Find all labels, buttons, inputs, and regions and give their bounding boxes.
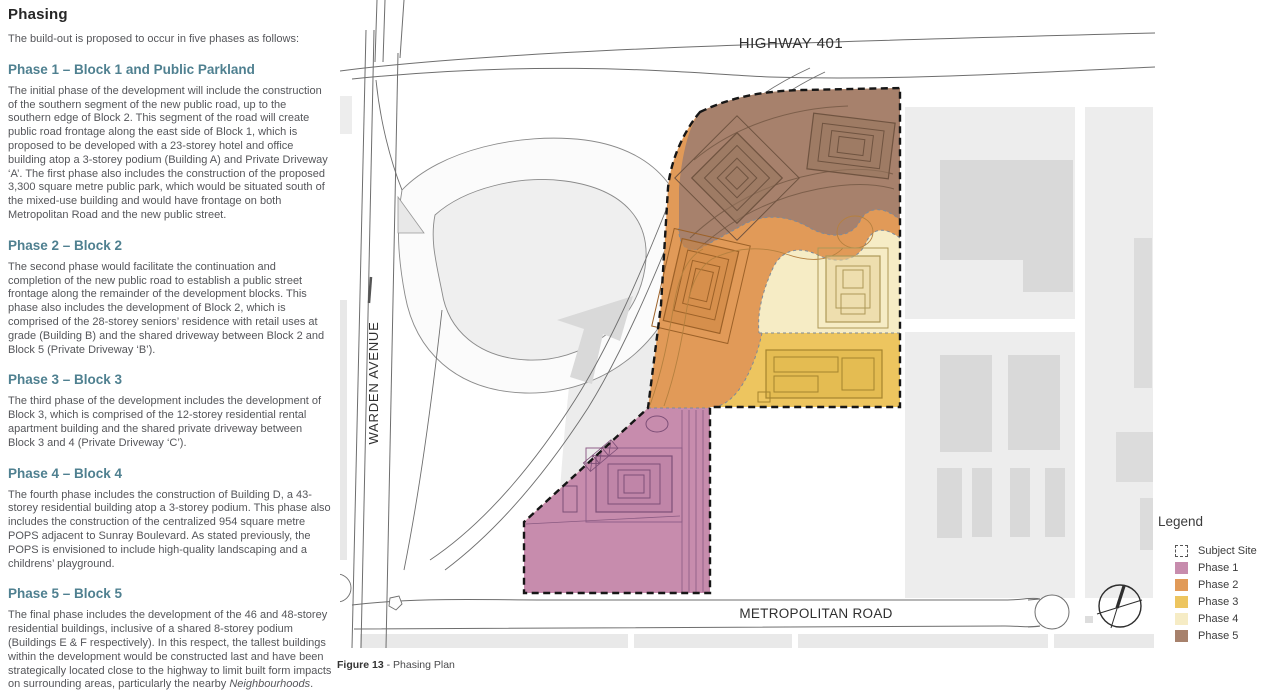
legend-item-label: Phase 1 bbox=[1198, 562, 1238, 574]
legend-item: Phase 4 bbox=[1158, 610, 1276, 627]
phase-body-segment: The initial phase of the development wil… bbox=[8, 85, 328, 221]
legend-item-label: Phase 3 bbox=[1198, 596, 1238, 608]
legend-item: Phase 2 bbox=[1158, 576, 1276, 593]
legend-item-label: Subject Site bbox=[1198, 545, 1257, 557]
figure-number: Figure 13 bbox=[337, 659, 384, 671]
phase-swatch bbox=[1175, 579, 1188, 591]
phase-3-buildings bbox=[758, 350, 882, 402]
phase-heading-3: Phase 3 – Block 3 bbox=[8, 372, 332, 387]
phase-body-segment: The second phase would facilitate the co… bbox=[8, 261, 324, 356]
phase-body-5: The final phase includes the development… bbox=[8, 609, 332, 690]
phase-4-buildings bbox=[818, 248, 888, 328]
legend-item-label: Phase 4 bbox=[1198, 613, 1238, 625]
map-legend: Legend Subject SitePhase 1Phase 2Phase 3… bbox=[1158, 514, 1276, 644]
phase-body-4: The fourth phase includes the constructi… bbox=[8, 489, 332, 572]
subject-site-swatch bbox=[1175, 545, 1188, 557]
phase-swatch bbox=[1175, 613, 1188, 625]
phase-body-segment: The fourth phase includes the constructi… bbox=[8, 489, 331, 570]
page-title: Phasing bbox=[8, 6, 332, 23]
phase-body-2: The second phase would facilitate the co… bbox=[8, 261, 332, 358]
phase-heading-2: Phase 2 – Block 2 bbox=[8, 238, 332, 253]
phase-body-segment: Neighbourhoods bbox=[229, 678, 310, 690]
legend-item: Phase 3 bbox=[1158, 593, 1276, 610]
legend-item: Phase 5 bbox=[1158, 627, 1276, 644]
phase-swatch bbox=[1175, 562, 1188, 574]
figure-caption: Figure 13 - Phasing Plan bbox=[337, 659, 455, 671]
phase-swatch bbox=[1175, 630, 1188, 642]
phase-heading-4: Phase 4 – Block 4 bbox=[8, 466, 332, 481]
text-column: Phasing The build-out is proposed to occ… bbox=[8, 6, 332, 690]
legend-title: Legend bbox=[1158, 514, 1276, 529]
highway-401-label: HIGHWAY 401 bbox=[739, 35, 843, 52]
phase-body-segment: The third phase of the development inclu… bbox=[8, 395, 321, 448]
phase-swatch bbox=[1175, 596, 1188, 608]
metropolitan-road-label: METROPOLITAN ROAD bbox=[739, 606, 892, 621]
figure-title: - Phasing Plan bbox=[387, 659, 455, 671]
phase-body-segment: . bbox=[310, 678, 313, 690]
warden-avenue-label: WARDEN AVENUE bbox=[366, 321, 381, 444]
phase-heading-5: Phase 5 – Block 5 bbox=[8, 586, 332, 601]
legend-item-label: Phase 2 bbox=[1198, 579, 1238, 591]
document-page: Phasing The build-out is proposed to occ… bbox=[0, 0, 1280, 690]
phase-body-3: The third phase of the development inclu… bbox=[8, 395, 332, 450]
legend-items: Subject SitePhase 1Phase 2Phase 3Phase 4… bbox=[1158, 542, 1276, 644]
legend-item: Phase 1 bbox=[1158, 559, 1276, 576]
legend-item: Subject Site bbox=[1158, 542, 1276, 559]
phase-sections: Phase 1 – Block 1 and Public ParklandThe… bbox=[8, 62, 332, 690]
phasing-plan-map: HIGHWAY 401 WARDEN AVENUE METROPOLITAN R… bbox=[340, 0, 1155, 648]
phase-body-1: The initial phase of the development wil… bbox=[8, 85, 332, 223]
intro-paragraph: The build-out is proposed to occur in fi… bbox=[8, 33, 332, 47]
phase-heading-1: Phase 1 – Block 1 and Public Parkland bbox=[8, 62, 332, 77]
legend-item-label: Phase 5 bbox=[1198, 630, 1238, 642]
